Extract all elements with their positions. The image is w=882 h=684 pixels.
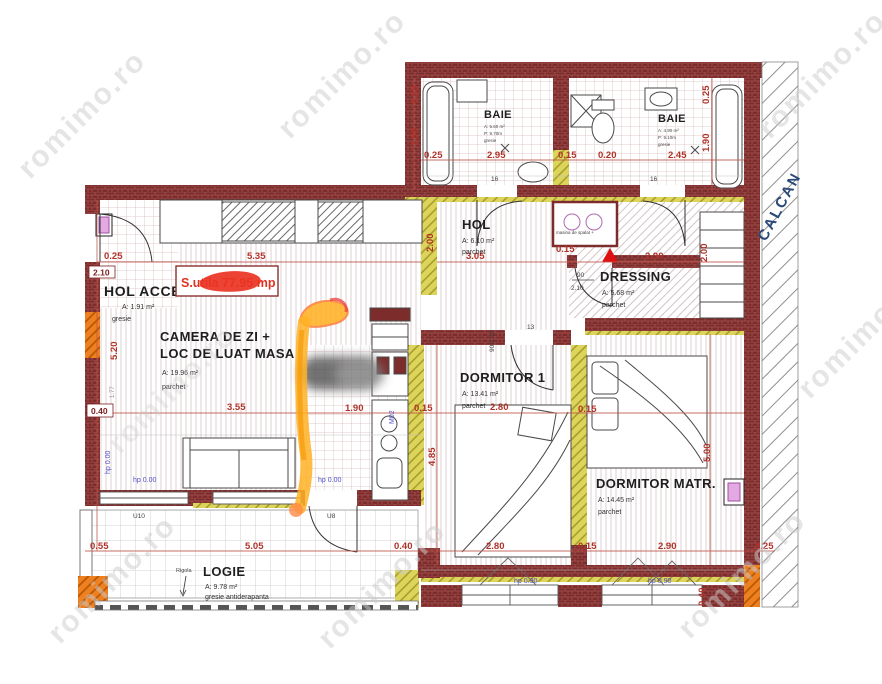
dim: 1.90 xyxy=(409,128,420,147)
dim: 0.15 xyxy=(414,403,433,414)
wall-kitchen xyxy=(408,345,424,505)
window-code-label: M02 xyxy=(389,410,396,424)
dim: 0.25 xyxy=(409,85,420,104)
dim: 5.35 xyxy=(247,251,266,262)
wall-right xyxy=(744,62,760,607)
toilet xyxy=(592,100,614,143)
bathtub-left xyxy=(423,82,453,185)
svg-text:HOL: HOL xyxy=(462,217,491,232)
door-label: U8 xyxy=(327,513,336,520)
svg-text:parchet: parchet xyxy=(462,249,485,256)
wall-main-top xyxy=(85,185,421,200)
dim: 0.20 xyxy=(598,150,617,161)
floor-plan-svg: 0.25 2.95 0.15 0.20 2.45 1.90 0.25 1.90 … xyxy=(0,0,882,684)
dim: 2.80 xyxy=(486,541,505,552)
dim: 0.15 xyxy=(578,404,597,415)
floor-plan-page: 0.25 2.95 0.15 0.20 2.45 1.90 0.25 1.90 … xyxy=(0,0,882,684)
radiator-icon xyxy=(724,479,744,505)
dim: 0.15 xyxy=(558,150,577,161)
svg-text:A: 6.10 m²: A: 6.10 m² xyxy=(462,238,495,245)
door-label: 16 xyxy=(491,176,499,183)
svg-text:gresie: gresie xyxy=(112,316,131,323)
dim: 0.15 xyxy=(578,541,597,552)
hp-label: hp 0.90 xyxy=(514,578,537,585)
wall-bedroom-divider xyxy=(571,345,587,545)
door-label: 2.10 xyxy=(571,285,584,292)
svg-text:DRESSING: DRESSING xyxy=(600,269,671,284)
wall-left-orange xyxy=(85,312,100,358)
hp-label: hp 0.00 xyxy=(318,477,341,484)
washer-label: masina de spalat + xyxy=(556,230,594,235)
svg-text:P: 9.70m: P: 9.70m xyxy=(484,131,502,136)
svg-text:BAIE: BAIE xyxy=(484,109,512,121)
svg-text:parchet: parchet xyxy=(598,509,621,516)
dim: 1.77 xyxy=(110,386,116,398)
svg-text:A: 5.60 m²: A: 5.60 m² xyxy=(484,124,505,129)
blur-redaction xyxy=(300,356,384,390)
dim: 2.00 xyxy=(699,244,710,263)
dim: 0.25 xyxy=(424,150,443,161)
dim: 5.20 xyxy=(109,342,120,361)
door-label: 90 xyxy=(577,272,585,279)
dim: 2.95 xyxy=(487,150,506,161)
dressing-shelf xyxy=(700,212,744,318)
sofa xyxy=(183,438,295,488)
dim: 2.90 xyxy=(645,251,664,262)
svg-text:A: 14.45 m²: A: 14.45 m² xyxy=(598,497,635,504)
dim: 1.90 xyxy=(345,403,364,414)
kitchen-unit xyxy=(370,308,410,500)
svg-text:P: 9.10m: P: 9.10m xyxy=(658,135,676,140)
svg-text:BAIE: BAIE xyxy=(658,113,686,125)
dim: 2.45 xyxy=(668,150,687,161)
dim: 0.55 xyxy=(90,541,109,552)
svg-text:DORMITOR 1: DORMITOR 1 xyxy=(460,370,545,385)
svg-text:A: 5.68 m²: A: 5.68 m² xyxy=(602,290,635,297)
svg-text:parchet: parchet xyxy=(602,302,625,309)
dim: 2.00 xyxy=(425,234,436,253)
bath-cabinet xyxy=(457,80,487,102)
svg-text:LOGIE: LOGIE xyxy=(203,564,245,579)
svg-text:Rigola: Rigola xyxy=(176,568,193,574)
washing-machine-closet xyxy=(553,202,617,246)
living-windows xyxy=(100,490,357,506)
dim: 2.90 xyxy=(658,541,677,552)
dim: 0.25 xyxy=(701,85,712,104)
sink-right xyxy=(645,88,677,110)
dim: 3.55 xyxy=(227,402,246,413)
hp-label: hp 0.00 xyxy=(133,477,156,484)
door-label: 16 xyxy=(650,176,658,183)
sink-left xyxy=(518,162,548,182)
dim: 5.00 xyxy=(702,444,713,463)
dim: 4.85 xyxy=(427,447,438,466)
hp-label: hp 0.90 xyxy=(648,578,671,585)
dim: 5.05 xyxy=(245,541,264,552)
svg-text:gresie: gresie xyxy=(658,142,671,147)
svg-text:A: 9.78 m²: A: 9.78 m² xyxy=(205,584,238,591)
wardrobe xyxy=(160,200,422,243)
door-label: U10 xyxy=(133,513,145,520)
svg-text:A: 13.41 m²: A: 13.41 m² xyxy=(462,391,499,398)
dim: 0.15 xyxy=(556,244,575,255)
dim: 0.40 xyxy=(91,406,108,416)
svg-text:A: 1.91 m²: A: 1.91 m² xyxy=(122,304,155,311)
wall-bath-divider xyxy=(553,78,569,150)
hp-label: hp 0.00 xyxy=(105,451,112,474)
bed-dormitor-matr xyxy=(587,356,707,468)
wall-bedrooms-bottom xyxy=(421,565,760,577)
bathtub-right xyxy=(712,85,742,188)
dim: 1.90 xyxy=(701,134,712,153)
door-label: 90/2.10 xyxy=(489,330,496,352)
hol-floor xyxy=(437,200,567,330)
svg-text:gresie antiderapanta: gresie antiderapanta xyxy=(205,594,269,601)
bed-dormitor1 xyxy=(455,405,571,557)
dim: 2.80 xyxy=(490,402,509,413)
svg-text:A: 4.90 m²: A: 4.90 m² xyxy=(658,128,679,133)
dim: 0.25 xyxy=(104,251,123,262)
svg-text:gresie: gresie xyxy=(484,138,497,143)
dim: 2.10 xyxy=(93,268,110,278)
svg-text:parchet: parchet xyxy=(462,403,485,410)
radiator-icon xyxy=(96,214,112,236)
wall-top xyxy=(405,62,762,78)
svg-text:DORMITOR MATR.: DORMITOR MATR. xyxy=(596,476,716,491)
door-label: 13 xyxy=(527,324,535,331)
